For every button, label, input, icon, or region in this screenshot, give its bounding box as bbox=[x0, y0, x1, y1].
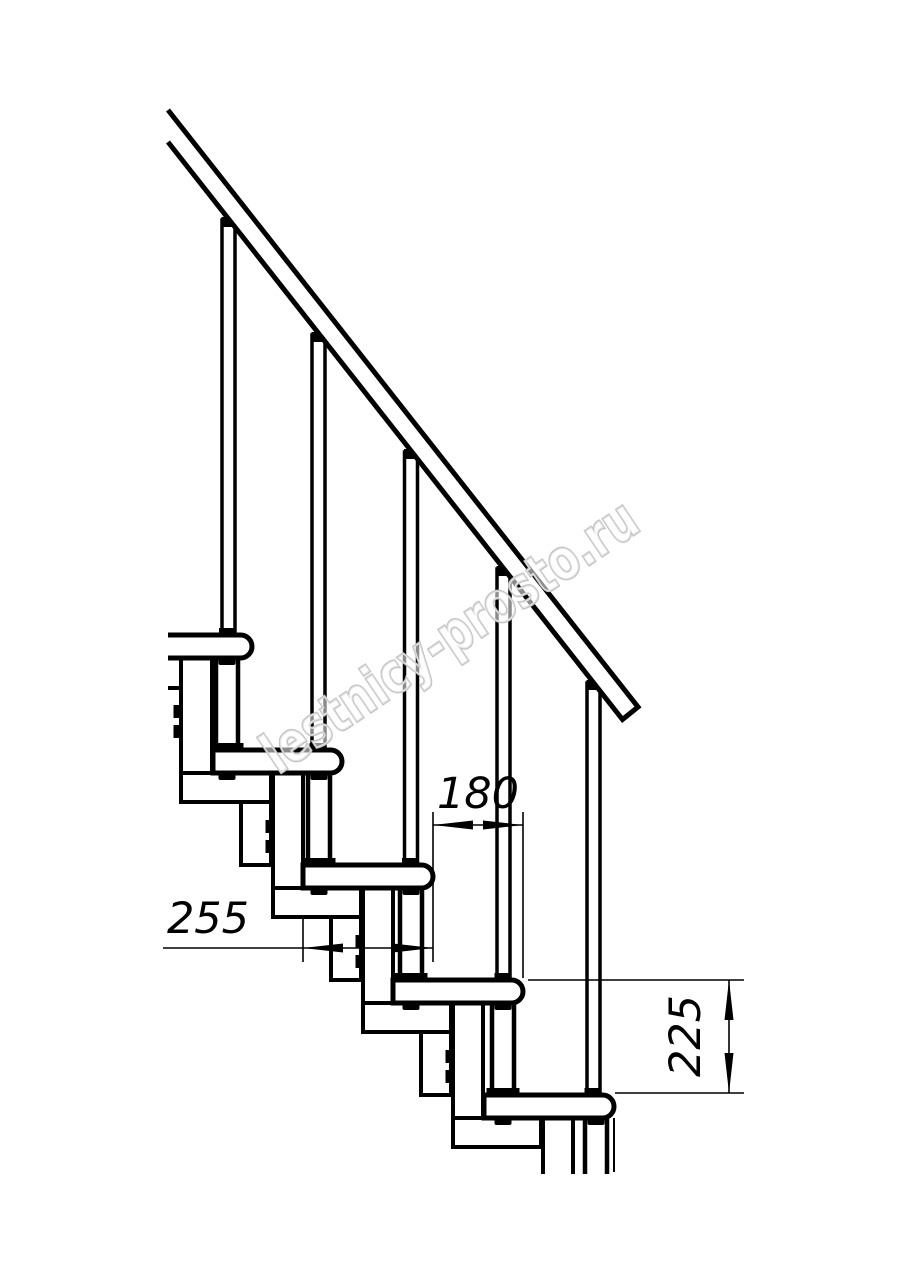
sleeve-nut-3 bbox=[403, 888, 420, 895]
tread-4 bbox=[393, 980, 523, 1003]
post-flange-4 bbox=[487, 1088, 520, 1096]
post-flange-3 bbox=[395, 973, 428, 981]
tread-3 bbox=[303, 865, 433, 888]
tread-1 bbox=[168, 635, 252, 658]
sleeve-nut-2 bbox=[311, 773, 328, 780]
module-tongue-1 bbox=[241, 802, 271, 865]
plate-bolt-4a bbox=[446, 1050, 454, 1063]
post-nut-1 bbox=[219, 773, 236, 780]
baluster-collar-4 bbox=[495, 973, 512, 981]
module-plate-5 bbox=[543, 1118, 573, 1174]
post-sleeve-5 bbox=[585, 1118, 607, 1174]
plate-bolt-1b bbox=[174, 725, 182, 738]
tread-5 bbox=[484, 1095, 614, 1118]
post-sleeve-1 bbox=[216, 658, 238, 750]
post-sleeve-3 bbox=[400, 888, 422, 980]
sleeve-nut-1 bbox=[219, 658, 236, 665]
baluster-1 bbox=[222, 220, 235, 635]
arrow-left bbox=[433, 821, 473, 830]
post-flange-2 bbox=[303, 858, 336, 866]
sleeve-nut-4 bbox=[495, 1003, 512, 1010]
baluster-collar-3 bbox=[402, 858, 419, 866]
technical-drawing-page: 180 255 225 lestnicy-prosto.ru bbox=[0, 0, 914, 1280]
post-sleeve-2 bbox=[308, 773, 330, 865]
post-nut-2 bbox=[311, 888, 328, 895]
baluster-collar-5 bbox=[585, 1088, 602, 1096]
arrow-up bbox=[725, 980, 734, 1020]
arrow-down bbox=[725, 1053, 734, 1093]
post-flange-1 bbox=[211, 743, 244, 751]
plate-bolt-2b bbox=[266, 840, 274, 853]
post-nut-4 bbox=[495, 1118, 512, 1125]
plate-bolt-1a bbox=[174, 705, 182, 718]
dimension-label-180: 180 bbox=[437, 769, 519, 819]
plate-bolt-3a bbox=[356, 935, 364, 948]
staircase-drawing: 180 255 225 lestnicy-prosto.ru bbox=[0, 0, 914, 1280]
dimension-225: 225 bbox=[528, 980, 744, 1093]
dimension-label-225: 225 bbox=[661, 995, 711, 1077]
module-tongue-3 bbox=[421, 1032, 451, 1095]
dimension-label-255: 255 bbox=[167, 894, 249, 944]
sleeve-nut-5 bbox=[588, 1118, 605, 1125]
plate-bolt-4b bbox=[446, 1070, 454, 1083]
baluster-collar-1 bbox=[219, 628, 236, 636]
post-nut-3 bbox=[403, 1003, 420, 1010]
plate-bolt-3b bbox=[356, 955, 364, 968]
post-sleeve-4 bbox=[492, 1003, 514, 1095]
plate-bolt-2a bbox=[266, 820, 274, 833]
baluster-5 bbox=[587, 683, 600, 1095]
arrow-left bbox=[303, 944, 343, 953]
